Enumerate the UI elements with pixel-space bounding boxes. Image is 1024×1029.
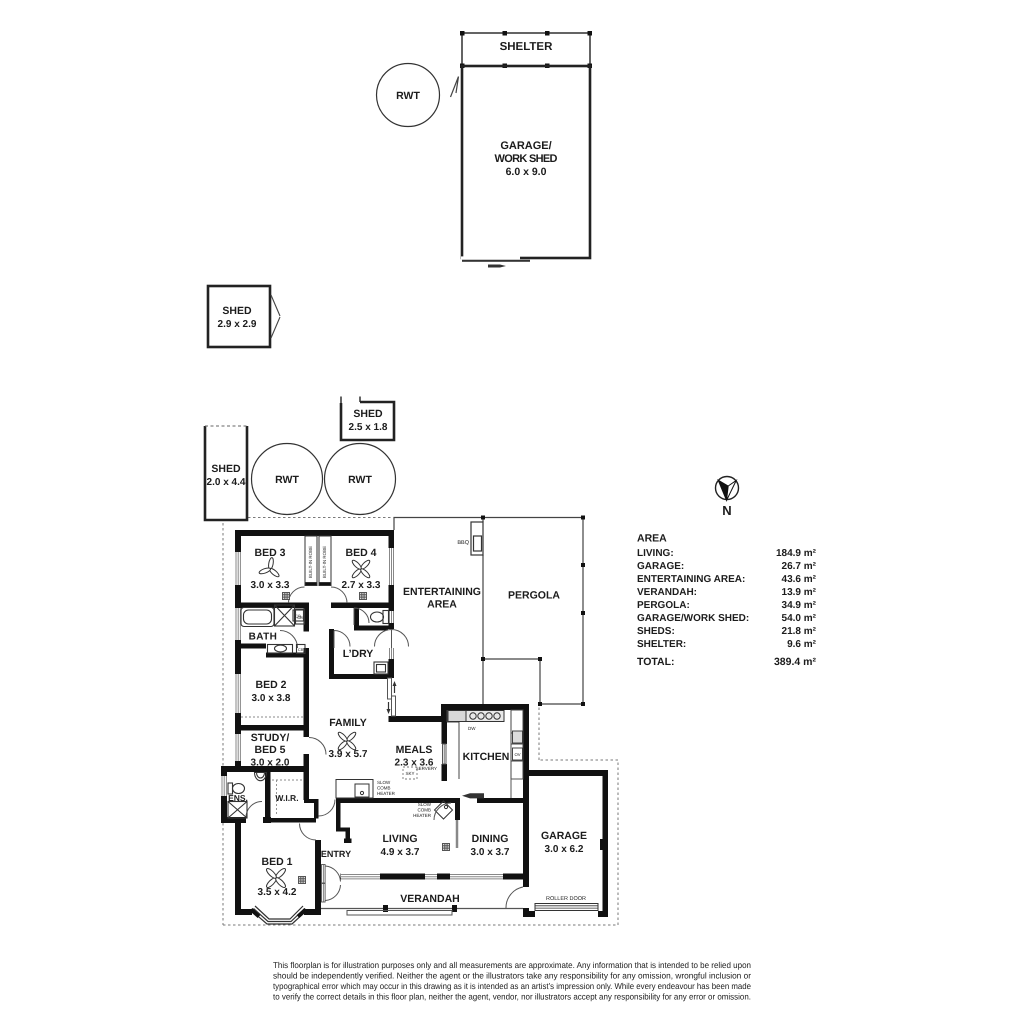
- svg-text:3.0 x 6.2: 3.0 x 6.2: [545, 844, 584, 855]
- svg-text:GARAGE: GARAGE: [541, 830, 587, 842]
- svg-text:ENS.: ENS.: [228, 793, 248, 803]
- svg-text:ENTERTAINING AREA:: ENTERTAINING AREA:: [637, 574, 745, 585]
- svg-text:13.9 m²: 13.9 m²: [782, 587, 817, 598]
- svg-text:SHED: SHED: [353, 408, 383, 420]
- svg-text:COMB: COMB: [418, 808, 432, 813]
- svg-text:ENTRY: ENTRY: [321, 849, 351, 859]
- svg-text:BED 2: BED 2: [256, 679, 287, 691]
- svg-text:184.9 m²: 184.9 m²: [776, 548, 817, 559]
- svg-text:2.3 x 3.6: 2.3 x 3.6: [395, 758, 434, 769]
- svg-text:PERGOLA: PERGOLA: [508, 590, 560, 602]
- svg-text:BED 5: BED 5: [255, 744, 286, 756]
- svg-text:BED 3: BED 3: [255, 547, 286, 559]
- svg-text:34.9 m²: 34.9 m²: [782, 600, 817, 611]
- svg-text:BATH: BATH: [249, 632, 278, 643]
- svg-text:HEATER: HEATER: [413, 813, 432, 818]
- svg-text:should be independently verifi: should be independently verified. Neithe…: [273, 971, 751, 981]
- svg-text:BBQ: BBQ: [457, 540, 469, 546]
- svg-text:3.0 x 2.0: 3.0 x 2.0: [251, 758, 290, 769]
- svg-text:CB: CB: [295, 614, 301, 619]
- svg-text:2.9 x 2.9: 2.9 x 2.9: [218, 319, 257, 330]
- svg-text:BED 4: BED 4: [346, 547, 377, 559]
- svg-text:SHELTER:: SHELTER:: [637, 639, 686, 650]
- svg-text:AREA: AREA: [637, 533, 667, 545]
- svg-text:SHED: SHED: [222, 305, 252, 317]
- svg-text:STUDY/: STUDY/: [251, 732, 290, 744]
- svg-text:LIVING: LIVING: [382, 833, 417, 845]
- svg-text:BED 1: BED 1: [262, 856, 293, 868]
- svg-text:SHED: SHED: [211, 463, 241, 475]
- svg-text:389.4 m²: 389.4 m²: [774, 656, 817, 668]
- svg-text:This floorplan is for illustra: This floorplan is for illustration purpo…: [273, 960, 751, 970]
- svg-text:N: N: [722, 503, 731, 518]
- svg-text:OV: OV: [514, 752, 520, 757]
- svg-text:TOTAL:: TOTAL:: [637, 656, 675, 668]
- svg-text:CB: CB: [298, 648, 304, 652]
- svg-text:2.5 x 1.8: 2.5 x 1.8: [349, 422, 388, 433]
- svg-text:LIVING:: LIVING:: [637, 548, 674, 559]
- svg-text:SHEDS:: SHEDS:: [637, 626, 675, 637]
- svg-text:GARAGE:: GARAGE:: [637, 561, 684, 572]
- svg-text:3.0 x 3.3: 3.0 x 3.3: [251, 580, 290, 591]
- svg-text:9.6 m²: 9.6 m²: [787, 639, 817, 650]
- svg-text:BUILT-IN ROBE: BUILT-IN ROBE: [322, 546, 327, 578]
- svg-text:HEATER: HEATER: [377, 791, 396, 796]
- svg-text:VERANDAH: VERANDAH: [400, 893, 460, 905]
- svg-text:DINING: DINING: [472, 833, 509, 845]
- svg-text:PERGOLA:: PERGOLA:: [637, 600, 690, 611]
- svg-text:RWT: RWT: [348, 474, 372, 486]
- svg-text:GARAGE/: GARAGE/: [500, 140, 551, 152]
- svg-text:ROLLER DOOR: ROLLER DOOR: [546, 896, 586, 902]
- svg-text:21.8 m²: 21.8 m²: [782, 626, 817, 637]
- svg-text:4.9 x 3.7: 4.9 x 3.7: [381, 847, 420, 858]
- svg-text:RWT: RWT: [275, 474, 299, 486]
- svg-text:AREA: AREA: [427, 599, 457, 611]
- svg-text:L’DRY: L’DRY: [343, 648, 374, 660]
- svg-text:SKY: SKY: [405, 771, 414, 776]
- svg-text:WORK SHED: WORK SHED: [495, 153, 558, 165]
- svg-text:26.7 m²: 26.7 m²: [782, 561, 817, 572]
- svg-text:SHELTER: SHELTER: [500, 41, 554, 53]
- svg-text:SLOW: SLOW: [377, 780, 391, 785]
- svg-text:typographical error which may: typographical error which may occur in t…: [273, 981, 751, 991]
- svg-text:RWT: RWT: [396, 90, 420, 102]
- svg-text:43.6 m²: 43.6 m²: [782, 574, 817, 585]
- svg-text:3.5 x 4.2: 3.5 x 4.2: [258, 887, 297, 898]
- svg-text:GARAGE/WORK SHED:: GARAGE/WORK SHED:: [637, 613, 749, 624]
- svg-text:VERANDAH:: VERANDAH:: [637, 587, 697, 598]
- svg-text:W.I.R.: W.I.R.: [275, 793, 298, 803]
- svg-text:6.0 x 9.0: 6.0 x 9.0: [506, 166, 547, 178]
- svg-text:ENTERTAINING: ENTERTAINING: [403, 586, 481, 598]
- svg-text:KITCHEN: KITCHEN: [463, 751, 510, 763]
- svg-text:54.0 m²: 54.0 m²: [782, 613, 817, 624]
- svg-text:3.0 x 3.7: 3.0 x 3.7: [471, 847, 510, 858]
- svg-text:SLOW: SLOW: [418, 802, 432, 807]
- svg-text:2.7 x 3.3: 2.7 x 3.3: [342, 580, 381, 591]
- svg-text:3.0 x 3.8: 3.0 x 3.8: [252, 693, 291, 704]
- svg-text:COMB: COMB: [377, 786, 391, 791]
- svg-text:2.0 x 4.4: 2.0 x 4.4: [207, 477, 246, 488]
- svg-text:FAMILY: FAMILY: [329, 717, 367, 729]
- svg-text:to verify the correct details: to verify the correct details in this fl…: [273, 992, 751, 1002]
- svg-text:MEALS: MEALS: [396, 744, 433, 756]
- svg-text:3.9 x 5.7: 3.9 x 5.7: [329, 749, 368, 760]
- svg-text:DW: DW: [468, 726, 476, 731]
- svg-text:BUILT-IN ROBE: BUILT-IN ROBE: [308, 546, 313, 578]
